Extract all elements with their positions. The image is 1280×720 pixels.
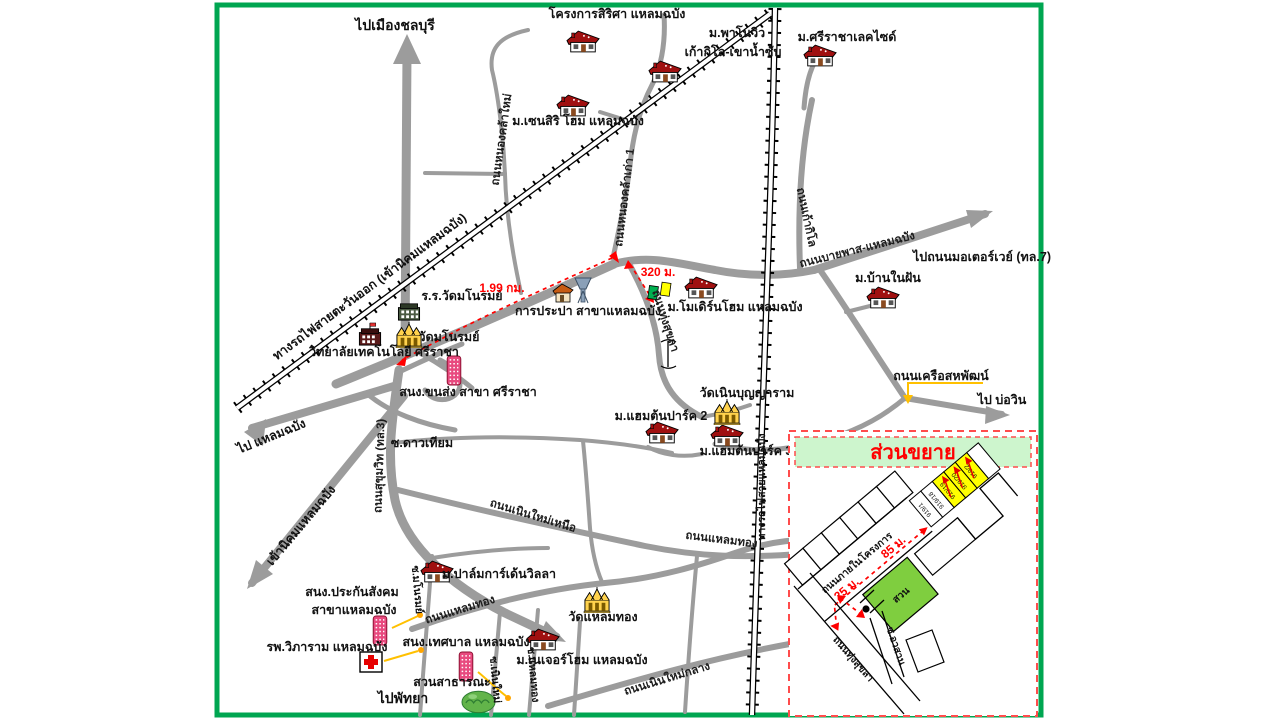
label-sso-1: สนง.ประกันสังคม — [305, 585, 399, 599]
label-wat-laem-thong: วัดแหลมทอง — [568, 610, 637, 624]
label-to-chonburi: ไปเมืองชลบุรี — [353, 16, 435, 34]
label-distance-199km: 1.99 กม. — [479, 281, 524, 295]
hospital-icon — [360, 652, 382, 672]
label-sso-2: สาขาแหลมฉบัง — [312, 603, 397, 617]
inset-entrance-dot — [862, 605, 869, 612]
label-palm-garden: ม.ปาล์มการ์เด้นวิลลา — [442, 566, 556, 581]
label-municipality: สนง.เทศบาล แหลมฉบัง — [402, 635, 529, 649]
label-distance-320m: 320 ม. — [641, 265, 676, 279]
park-icon — [462, 691, 495, 712]
label-panoview-2: เก้ากิโล-เขาน้ำซับ — [685, 42, 782, 59]
label-to-bowin: ไป บ่อวิน — [976, 392, 1027, 407]
office-icon-transport — [447, 356, 461, 385]
direction-map: ไปเมืองชลบุรี โครงการสิริศา แหลมฉบัง ม.พ… — [0, 0, 1280, 720]
label-transport-office: สนง.ขนส่ง สาขา ศรีราชา — [399, 385, 537, 399]
label-zensiri: ม.เซนสิริ โฮม แหลมฉบัง — [512, 113, 644, 128]
map-canvas: ไปเมืองชลบุรี โครงการสิริศา แหลมฉบัง ม.พ… — [0, 0, 1280, 720]
inset-panel: ส่วนขยาย 919/1 919/18 919/19 919 — [780, 418, 1037, 716]
label-ban-nai-fun: ม.บ้านในฝัน — [855, 270, 921, 285]
label-soi-dao-thiam: ซ.ดาวเทียม — [391, 436, 453, 450]
label-hampton3: ม.แฮมต้นปาร์ค 3 — [700, 443, 793, 458]
label-to-motorway: ไปถนนมอเตอร์เวย์ (ทล.7) — [911, 249, 1051, 264]
label-road-khruea-sahaphat: ถนนเครือสหพัฒน์ — [893, 368, 989, 383]
label-sirisa: โครงการสิริศา แหลมฉบัง — [548, 6, 686, 21]
label-railway-laem-chabang: ทางรถไฟสายแหลมฉบัง — [755, 433, 768, 540]
label-waterworks: การประปา สาขาแหลมฉบัง — [515, 304, 661, 318]
label-college: วิทยาลัยเทคโนโลยี ศรีราชา — [308, 344, 459, 359]
label-to-pattaya: ไปพัทยา — [376, 689, 428, 706]
label-wat-noen: วัดเนินบุญญาราม — [700, 386, 795, 401]
school-icon-manorom — [398, 304, 419, 320]
label-wat-manorom: วัดมโนรมย์ — [419, 329, 480, 344]
label-hospital: รพ.วิภาราม แหลมฉบัง — [267, 640, 388, 654]
label-park: สวนสาธารณะ — [413, 675, 491, 689]
inset-title: ส่วนขยาย — [870, 442, 955, 464]
label-panoview-1: ม.พาโนวิว — [709, 25, 765, 40]
connector-dot-municipality — [505, 695, 511, 701]
label-hampton2: ม.แฮมต้นปาร์ค 2 — [615, 408, 708, 423]
label-modern-home: ม.โมเดิร์นโฮม แหลมฉบัง — [667, 299, 802, 314]
label-lakeside: ม.ศรีราชาเลคไซด์ — [798, 29, 897, 44]
